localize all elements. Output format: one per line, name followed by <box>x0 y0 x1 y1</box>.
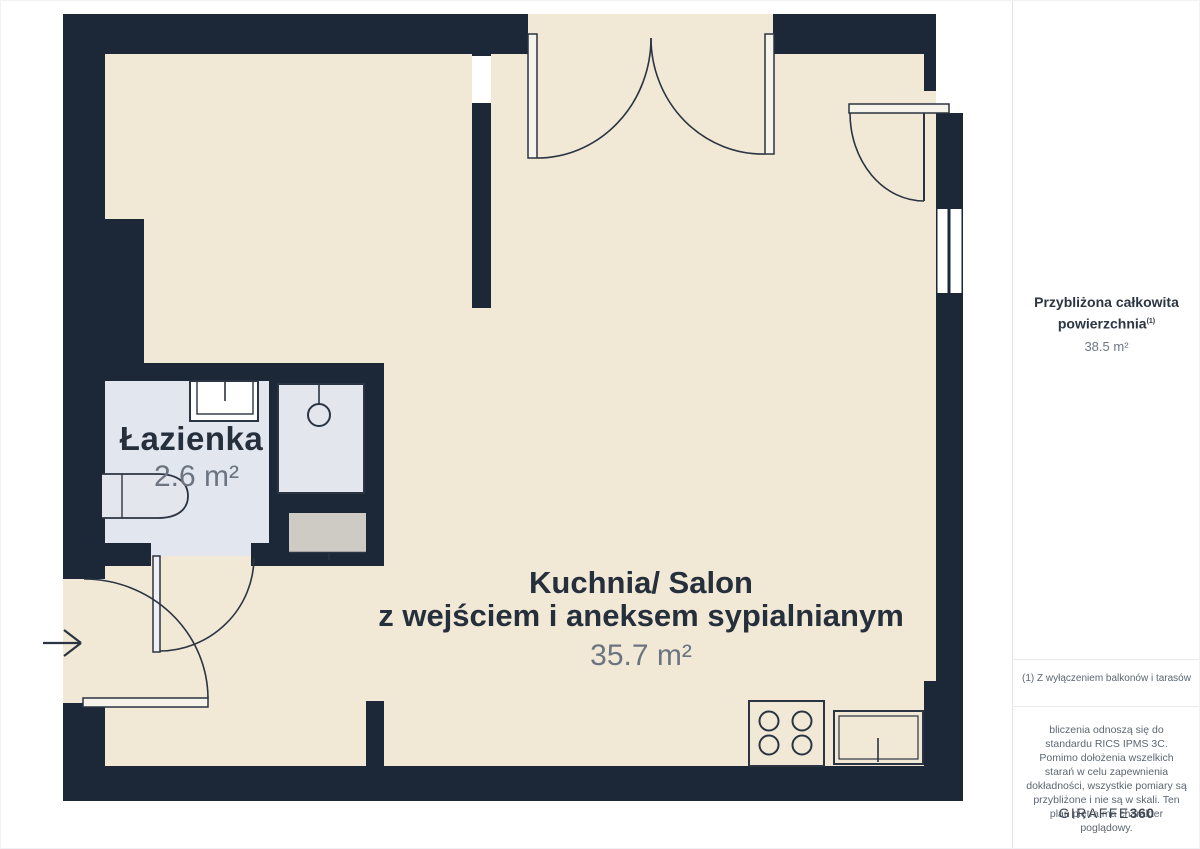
footnote-text: (1) Z wyłączeniem balkonów i tarasów <box>1018 673 1195 684</box>
washing-machine <box>289 513 366 560</box>
total-area-heading: Przybliżona całkowita powierzchnia(1) <box>1026 293 1187 334</box>
interior-window <box>472 56 491 103</box>
logo-text: GIRAFFE <box>1058 805 1129 821</box>
total-area-footnote-marker: (1) <box>1147 318 1156 325</box>
total-area-label: Przybliżona całkowita powierzchnia <box>1034 294 1179 332</box>
logo-suffix: 360 <box>1130 805 1155 821</box>
stove <box>749 701 824 766</box>
kitchen-sink <box>834 711 923 764</box>
room-area-kuchnia: 35.7 m² <box>381 639 901 673</box>
divider-top <box>1012 659 1200 660</box>
floorplan-page: Łazienka 2.6 m² Kuchnia/ Salon z wejście… <box>0 0 1200 849</box>
total-area-value: 38.5 m² <box>1026 339 1187 354</box>
bathroom-sink <box>190 381 258 421</box>
info-panel: Przybliżona całkowita powierzchnia(1) 38… <box>1012 1 1200 849</box>
right-wall-window <box>936 204 963 298</box>
room-label-kuchnia-line2: z wejściem i aneksem sypialnianym <box>341 598 941 634</box>
room-label-kuchnia-line1: Kuchnia/ Salon <box>381 565 901 601</box>
room-area-lazienka: 2.6 m² <box>89 460 304 494</box>
divider-bottom <box>1012 706 1200 707</box>
room-label-lazienka: Łazienka <box>89 420 294 458</box>
giraffe360-logo: GIRAFFE360 <box>1012 805 1200 821</box>
